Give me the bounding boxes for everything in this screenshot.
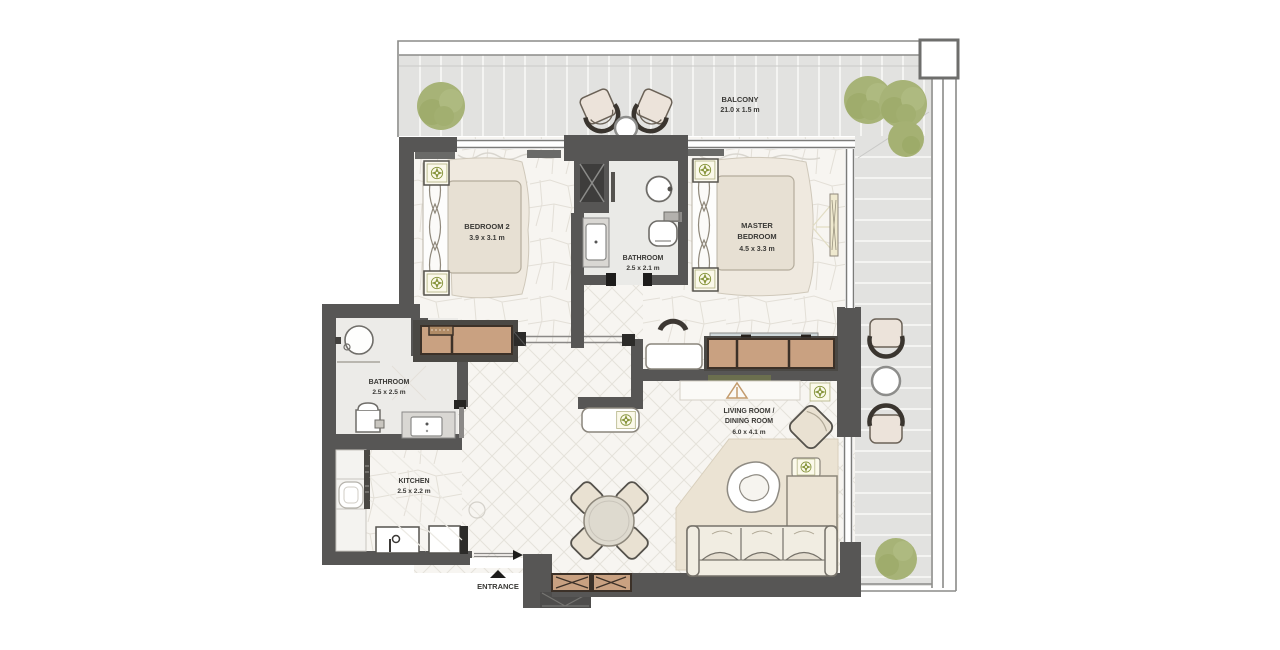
svg-text:6.0 x 4.1 m: 6.0 x 4.1 m [732,429,765,436]
svg-text:2.5 x 2.2 m: 2.5 x 2.2 m [397,488,430,495]
svg-text:BATHROOM: BATHROOM [369,379,410,386]
svg-text:MASTER: MASTER [741,221,773,230]
svg-text:DINING ROOM: DINING ROOM [725,418,773,425]
svg-text:3.9 x 3.1 m: 3.9 x 3.1 m [469,235,504,242]
svg-text:LIVING ROOM /: LIVING ROOM / [724,408,775,415]
svg-text:2.5 x 2.1 m: 2.5 x 2.1 m [626,265,659,272]
svg-text:BATHROOM: BATHROOM [623,255,664,262]
svg-text:21.0 x 1.5 m: 21.0 x 1.5 m [720,107,759,114]
svg-text:BALCONY: BALCONY [721,95,758,104]
svg-text:KITCHEN: KITCHEN [398,478,429,485]
svg-text:2.5 x 2.5 m: 2.5 x 2.5 m [372,389,405,396]
svg-text:BEDROOM: BEDROOM [737,232,776,241]
svg-text:4.5 x 3.3 m: 4.5 x 3.3 m [739,246,774,253]
svg-text:BEDROOM 2: BEDROOM 2 [464,222,509,231]
svg-text:ENTRANCE: ENTRANCE [477,582,519,591]
